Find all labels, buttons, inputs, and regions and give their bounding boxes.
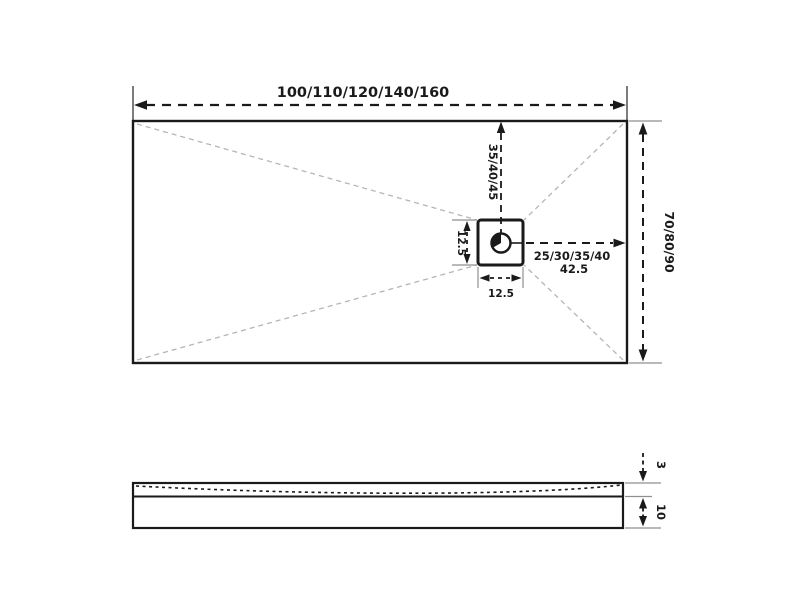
drain-top-offset-label: 35/40/45 — [486, 144, 500, 200]
drain-height-label: 12.5 — [455, 230, 467, 256]
side-view: 3 10 — [133, 453, 668, 528]
profile-outline — [133, 483, 623, 528]
width-dimension-label: 100/110/120/140/160 — [277, 85, 450, 101]
dim-arrow-up — [639, 498, 647, 509]
drain-width-label: 12.5 — [488, 288, 514, 300]
dim-arrow-down — [639, 516, 647, 527]
surface-thickness-dimension: 3 — [625, 453, 668, 497]
dim-arrow-left — [134, 100, 147, 109]
width-dimension: 100/110/120/140/160 — [133, 85, 627, 120]
height-dimension-label: 70/80/90 — [662, 211, 677, 273]
drain — [478, 220, 524, 265]
drawing-canvas: 100/110/120/140/160 70/80/90 35/40/45 — [0, 0, 800, 611]
top-view: 100/110/120/140/160 70/80/90 35/40/45 — [133, 85, 677, 363]
dim-arrow-up — [639, 123, 648, 135]
drain-right-offset-label: 25/30/35/40 — [534, 249, 611, 263]
dim-arrow-down — [639, 471, 647, 482]
dim-arrow-right — [613, 100, 626, 109]
technical-drawing: 100/110/120/140/160 70/80/90 35/40/45 — [0, 0, 800, 611]
tray-outline — [133, 121, 627, 363]
base-thickness-label: 10 — [654, 504, 668, 520]
base-thickness-dimension: 10 — [625, 498, 668, 528]
height-dimension: 70/80/90 — [629, 121, 677, 363]
dim-arrow-down — [639, 350, 648, 362]
drain-right-offset-value: 42.5 — [560, 262, 588, 276]
surface-thickness-label: 3 — [654, 461, 668, 469]
